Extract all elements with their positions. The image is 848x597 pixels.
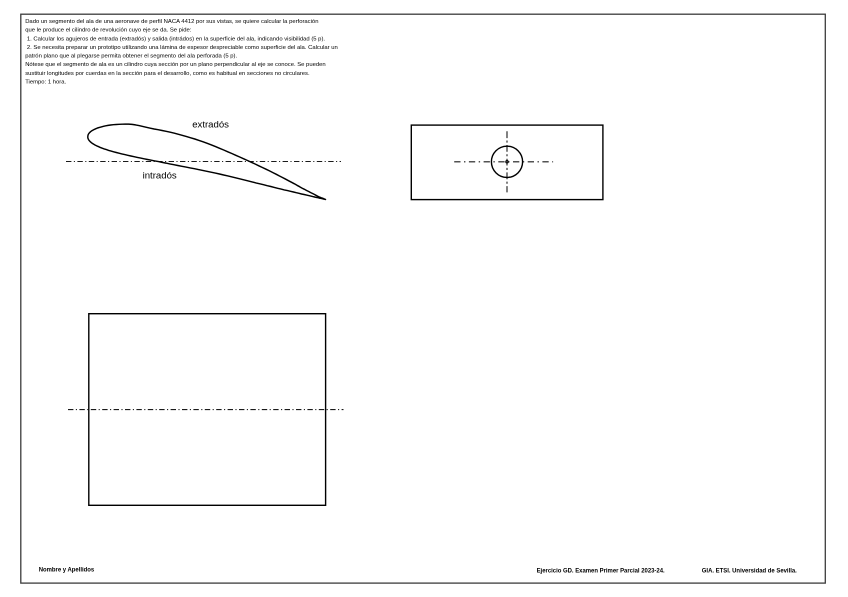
svg-text:GIA. ETSI. Universidad de Sevi: GIA. ETSI. Universidad de Sevilla. xyxy=(702,568,797,574)
svg-text:Nótese que el segmento de ala: Nótese que el segmento de ala es un cili… xyxy=(25,62,325,68)
svg-text:intradós: intradós xyxy=(143,171,177,182)
svg-text:extradós: extradós xyxy=(192,120,229,131)
svg-text:1. Calcular los agujeros de en: 1. Calcular los agujeros de entrada (ext… xyxy=(27,36,326,42)
svg-text:que le produce el cilindro de: que le produce el cilindro de revolución… xyxy=(25,28,192,34)
svg-text:Tiempo: 1 hora.: Tiempo: 1 hora. xyxy=(25,79,66,85)
svg-text:Ejercicio GD. Examen Primer Pa: Ejercicio GD. Examen Primer Parcial 2023… xyxy=(537,568,665,574)
svg-text:Dado un segmento del ala de un: Dado un segmento del ala de una aeronave… xyxy=(25,19,318,25)
svg-text:patrón plano que al plegarse p: patrón plano que al plegarse permita obt… xyxy=(25,54,237,60)
svg-text:Nombre y Apellidos: Nombre y Apellidos xyxy=(39,567,95,573)
svg-text:2. Se necesita preparar un pro: 2. Se necesita preparar un prototipo uti… xyxy=(27,45,338,51)
svg-text:sustituir longitudes por cuerd: sustituir longitudes por cuerdas en la s… xyxy=(25,71,310,77)
